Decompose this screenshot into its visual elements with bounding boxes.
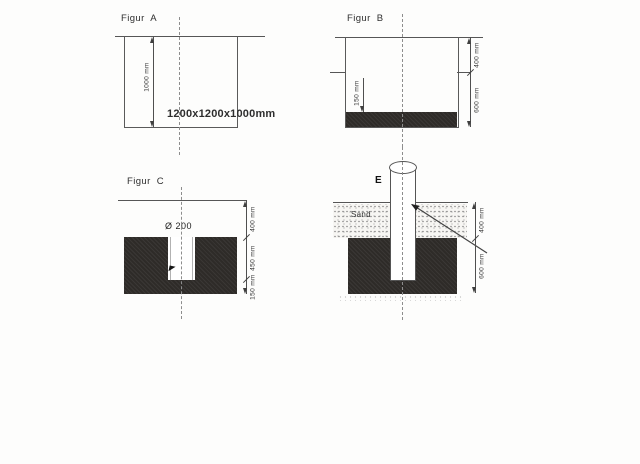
figur-c-hole-diameter-label: Ø 200 xyxy=(165,221,192,231)
figur-a-centerline xyxy=(179,17,180,155)
figur-b-layer-dim-label: 150 mm xyxy=(354,80,361,106)
figur-b-layer-dim-arrow xyxy=(360,106,364,112)
figur-b-top-dim-label: 400 mm xyxy=(474,42,481,68)
figur-c-hole-pointer-arrow xyxy=(168,265,175,272)
figur-a-title: Figur A xyxy=(121,13,157,24)
figur-c-dim-arrow-bottom xyxy=(243,288,247,294)
figur-a-dim-line xyxy=(153,37,154,127)
figur-b-level-tick-left xyxy=(330,72,345,73)
figur-c-hole-dim-label: 450 mm xyxy=(250,245,257,271)
figur-a-depth-label: 1000 mm xyxy=(144,62,151,92)
figur-c-centerline xyxy=(181,187,182,319)
figur-d-soil-speckle xyxy=(338,295,463,301)
figur-b-title: Figur B xyxy=(347,13,383,24)
figur-c-dim-arrow-top xyxy=(243,201,247,207)
figur-c-base-dim-label: 150 mm xyxy=(250,274,257,300)
figur-b-bottom-dim-label: 600 mm xyxy=(474,87,481,113)
figur-d-pole-label: E xyxy=(375,175,382,186)
figur-b-dim-line xyxy=(470,37,471,127)
technical-drawing-page: Figur A 1000 mm 1200x1200x1000mm Figur B… xyxy=(0,0,640,464)
figur-d-soil-label: Sand xyxy=(351,210,371,219)
figur-b-centerline xyxy=(402,14,403,147)
figur-b-dim-arrow-top xyxy=(467,38,471,44)
figur-b-dim-arrow-bottom xyxy=(467,121,471,127)
figur-a-dim-arrow-bottom xyxy=(150,121,154,127)
figur-c-title: Figur C xyxy=(127,176,164,187)
figur-c-ground-line xyxy=(118,200,246,202)
figur-a-size-label: 1200x1200x1000mm xyxy=(167,108,275,120)
figur-d-dim-arrow-bottom xyxy=(472,287,476,293)
figur-d-top-dim-label: 400 mm xyxy=(479,207,486,233)
figur-d-block-dim-label: 600 mm xyxy=(479,253,486,279)
figur-a-dim-arrow-top xyxy=(150,37,154,43)
figur-d-dim-line xyxy=(475,202,476,293)
figur-d-dim-arrow-top xyxy=(472,203,476,209)
figur-c-top-dim-label: 400 mm xyxy=(250,206,257,232)
